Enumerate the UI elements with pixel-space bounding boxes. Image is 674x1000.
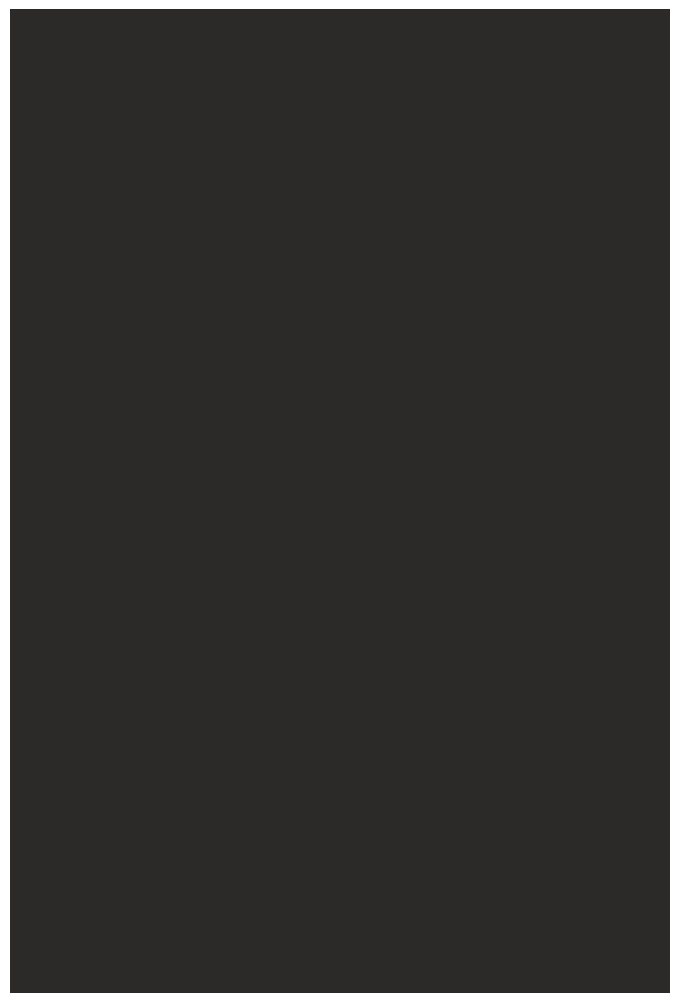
page-background: { "screen": { "description": "blank dark… (0, 0, 674, 1000)
blank-dark-screen (10, 9, 670, 993)
